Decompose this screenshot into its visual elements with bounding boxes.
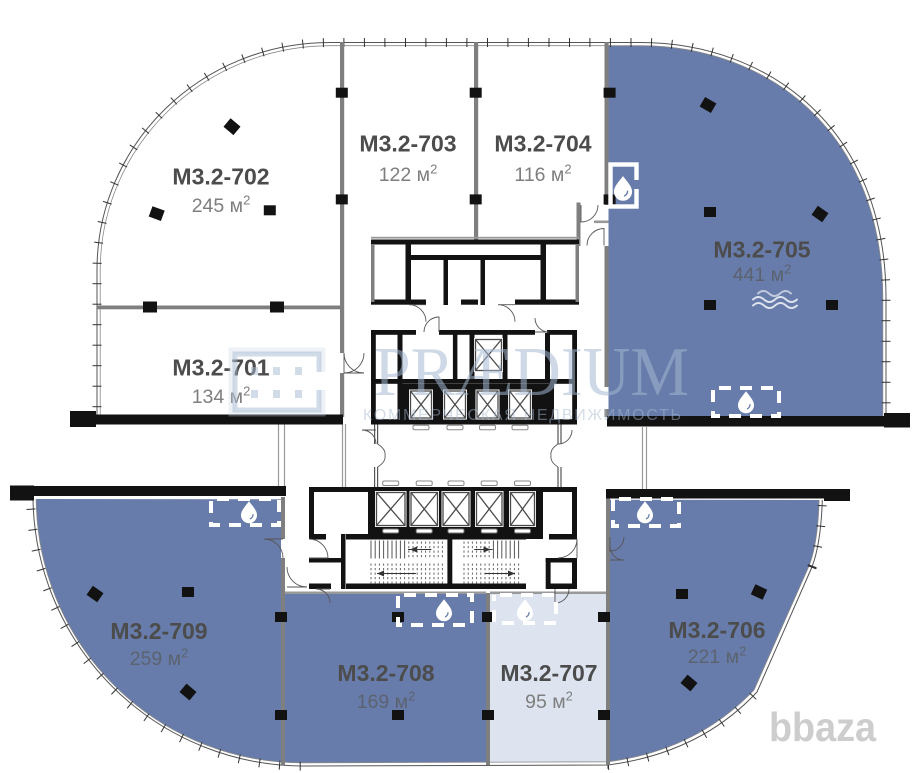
svg-text:M3.2-707: M3.2-707 <box>500 660 597 686</box>
svg-text:134 м2: 134 м2 <box>192 384 251 409</box>
svg-text:M3.2-704: M3.2-704 <box>494 131 591 157</box>
svg-text:M3.2-708: M3.2-708 <box>337 660 434 686</box>
svg-text:M3.2-702: M3.2-702 <box>172 164 269 190</box>
svg-text:169 м2: 169 м2 <box>357 689 416 714</box>
svg-text:M3.2-703: M3.2-703 <box>359 131 456 157</box>
svg-text:M3.2-705: M3.2-705 <box>713 237 810 263</box>
svg-text:221 м2: 221 м2 <box>688 644 747 669</box>
svg-text:122 м2: 122 м2 <box>379 162 438 187</box>
svg-text:441 м2: 441 м2 <box>733 262 792 287</box>
svg-text:245 м2: 245 м2 <box>192 193 251 218</box>
svg-text:bbaza: bbaza <box>769 704 877 750</box>
svg-text:M3.2-709: M3.2-709 <box>110 618 207 644</box>
svg-text:PRÆDIUM: PRÆDIUM <box>374 334 689 411</box>
svg-text:116 м2: 116 м2 <box>514 162 571 187</box>
svg-text:M3.2-706: M3.2-706 <box>668 617 765 643</box>
svg-text:259 м2: 259 м2 <box>130 646 189 671</box>
